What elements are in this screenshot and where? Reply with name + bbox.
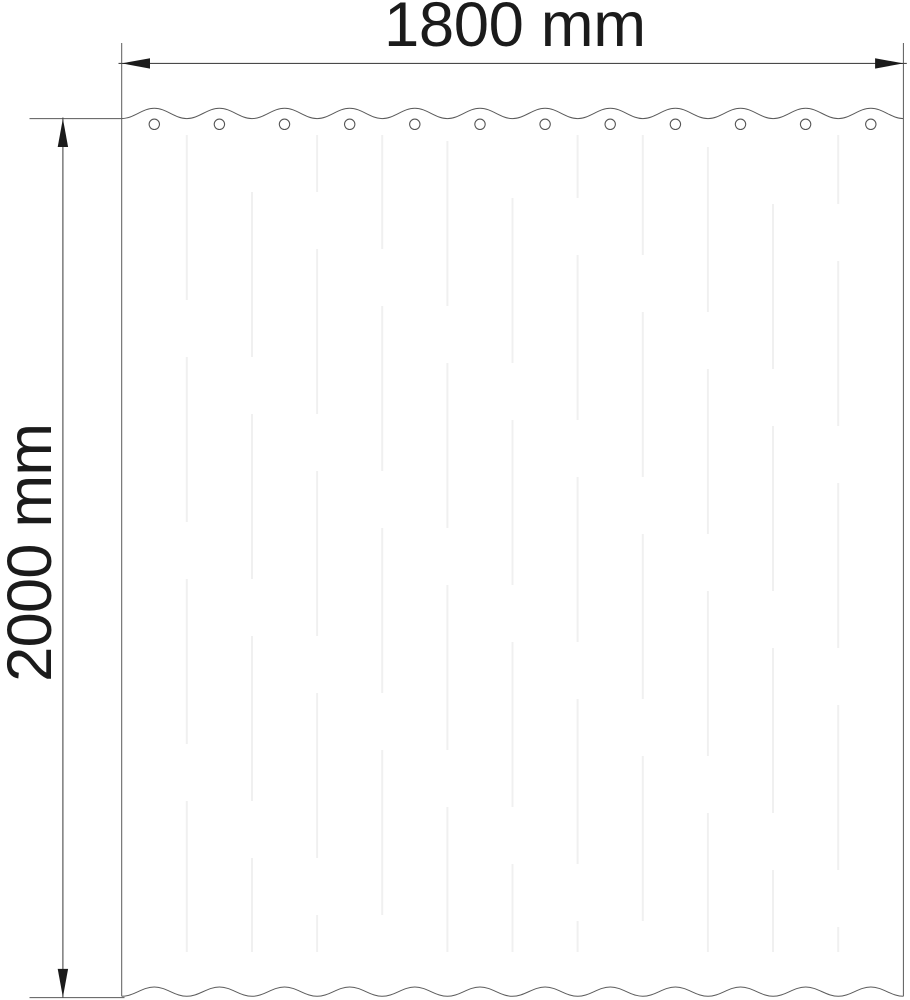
svg-text:2000 mm: 2000 mm bbox=[0, 423, 65, 682]
svg-text:1800 mm: 1800 mm bbox=[384, 0, 646, 60]
